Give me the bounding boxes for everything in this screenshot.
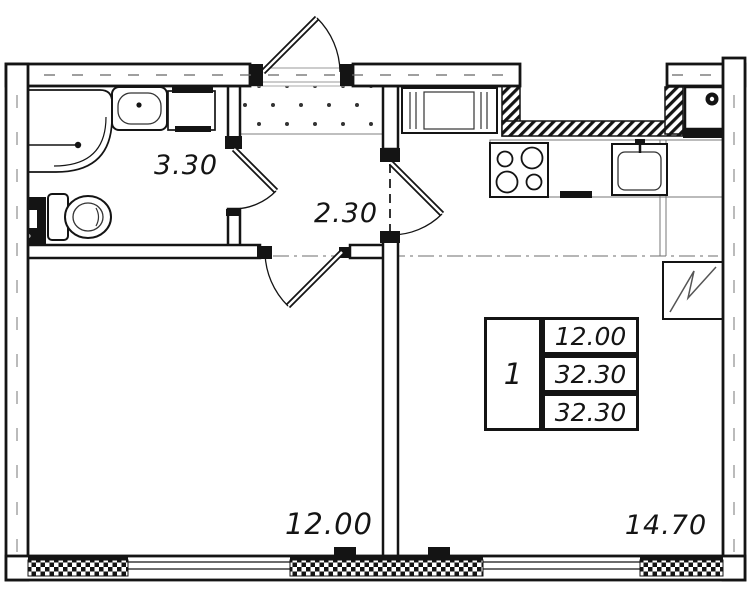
floor-plan: 3.30 2.30 12.00 14.70 1 12.00 32.30 32.3…: [0, 0, 748, 600]
living-room-door: [265, 252, 342, 306]
entry-mat: [240, 86, 383, 134]
corner-shower-icon: [28, 90, 112, 172]
kitchen-sink-icon: [612, 139, 667, 195]
kitchen-cabinets: [402, 88, 497, 133]
bathroom-door: [234, 149, 276, 209]
refrigerator-zigzag-icon: [663, 262, 723, 319]
stamp-rooms-count: 1: [484, 317, 542, 431]
bathroom-sink-icon: [112, 87, 167, 130]
apartment-stamp: 1 12.00 32.30 32.30: [484, 317, 639, 431]
toilet-icon: [48, 194, 111, 240]
bottom-wall-with-windows: [6, 547, 745, 580]
washing-machine-icon: [168, 86, 215, 132]
kitchen-area-label: 14.70: [616, 510, 716, 541]
entrance-door: [263, 18, 340, 82]
corner-sink-icon: [683, 87, 723, 138]
bathroom-area-label: 3.30: [140, 150, 232, 181]
living-room-area-label: 12.00: [279, 507, 379, 541]
stamp-area: 32.30: [542, 355, 639, 393]
window-vent-tab: [334, 547, 356, 556]
vent-shaft-hatched: [502, 86, 683, 136]
kitchen-door: [391, 163, 442, 235]
stamp-total-area: 32.30: [542, 393, 639, 431]
window-vent-tab: [428, 547, 450, 556]
hallway-area-label: 2.30: [300, 198, 392, 229]
stamp-living-area: 12.00: [542, 317, 639, 355]
